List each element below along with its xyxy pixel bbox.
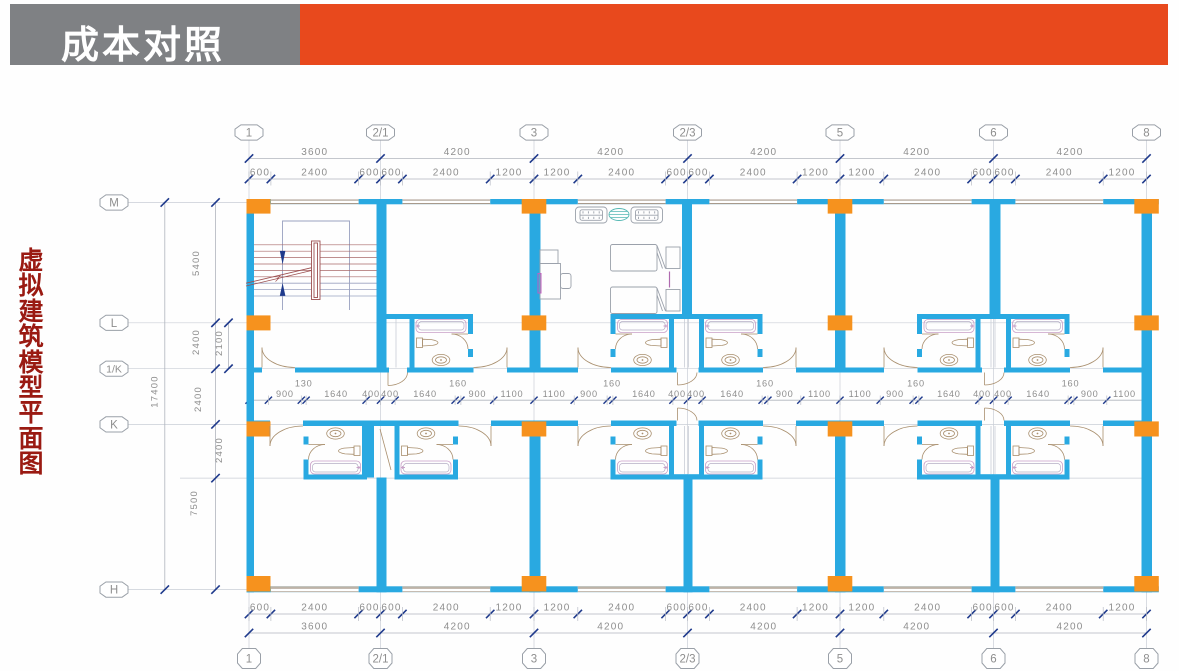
svg-text:2400: 2400: [301, 603, 328, 614]
svg-text:600: 600: [359, 603, 379, 614]
svg-text:900: 900: [469, 389, 487, 399]
svg-text:600: 600: [688, 168, 708, 179]
svg-text:1640: 1640: [720, 389, 744, 399]
svg-text:1200: 1200: [543, 603, 570, 614]
svg-text:2/1: 2/1: [373, 128, 389, 140]
svg-text:2400: 2400: [608, 603, 635, 614]
svg-text:600: 600: [688, 603, 708, 614]
svg-text:2/1: 2/1: [373, 654, 389, 666]
svg-text:4200: 4200: [903, 622, 930, 633]
svg-text:600: 600: [359, 168, 379, 179]
svg-text:2100: 2100: [214, 330, 225, 356]
svg-text:2400: 2400: [433, 603, 460, 614]
svg-text:4200: 4200: [903, 147, 930, 158]
svg-text:1640: 1640: [937, 389, 961, 399]
svg-text:3: 3: [531, 654, 537, 666]
svg-text:4200: 4200: [750, 147, 777, 158]
svg-text:2400: 2400: [191, 329, 202, 355]
svg-text:400: 400: [687, 389, 705, 399]
svg-text:17400: 17400: [150, 375, 161, 407]
svg-text:7500: 7500: [189, 490, 200, 516]
svg-text:1: 1: [246, 654, 252, 666]
svg-text:160: 160: [603, 379, 621, 389]
svg-text:4200: 4200: [444, 622, 471, 633]
svg-text:5400: 5400: [191, 250, 202, 276]
svg-text:160: 160: [1062, 379, 1080, 389]
svg-text:2400: 2400: [433, 168, 460, 179]
svg-text:1100: 1100: [543, 389, 566, 399]
svg-text:400: 400: [362, 389, 380, 399]
svg-text:2400: 2400: [740, 603, 767, 614]
svg-text:2/3: 2/3: [680, 128, 696, 140]
svg-text:600: 600: [666, 603, 686, 614]
svg-text:160: 160: [907, 379, 925, 389]
svg-text:6: 6: [990, 654, 996, 666]
svg-text:400: 400: [994, 389, 1012, 399]
svg-text:4200: 4200: [750, 622, 777, 633]
svg-text:4200: 4200: [444, 147, 471, 158]
svg-text:2/3: 2/3: [680, 654, 696, 666]
svg-text:5: 5: [837, 128, 843, 140]
svg-text:2400: 2400: [214, 437, 225, 463]
svg-text:900: 900: [580, 389, 598, 399]
svg-text:4200: 4200: [597, 147, 624, 158]
svg-text:900: 900: [1081, 389, 1099, 399]
svg-text:400: 400: [668, 389, 686, 399]
svg-text:3600: 3600: [301, 147, 328, 158]
svg-text:3600: 3600: [301, 622, 328, 633]
svg-text:1200: 1200: [495, 603, 522, 614]
svg-text:4200: 4200: [597, 622, 624, 633]
svg-text:1200: 1200: [1108, 603, 1135, 614]
svg-text:600: 600: [250, 168, 270, 179]
svg-text:H: H: [110, 585, 118, 597]
svg-text:1640: 1640: [632, 389, 656, 399]
svg-text:160: 160: [449, 379, 467, 389]
svg-text:1640: 1640: [413, 389, 437, 399]
svg-text:1200: 1200: [802, 168, 829, 179]
svg-text:2400: 2400: [608, 168, 635, 179]
svg-text:900: 900: [776, 389, 794, 399]
svg-text:600: 600: [381, 603, 401, 614]
svg-text:3: 3: [531, 128, 537, 140]
svg-text:1100: 1100: [808, 389, 831, 399]
svg-text:400: 400: [381, 389, 399, 399]
svg-text:L: L: [111, 318, 118, 330]
svg-text:1100: 1100: [849, 389, 872, 399]
svg-text:2400: 2400: [914, 168, 941, 179]
svg-text:600: 600: [994, 603, 1014, 614]
svg-text:2400: 2400: [1046, 168, 1073, 179]
svg-text:M: M: [109, 198, 119, 210]
svg-text:600: 600: [666, 168, 686, 179]
svg-text:1200: 1200: [543, 168, 570, 179]
svg-text:160: 160: [756, 379, 774, 389]
svg-text:400: 400: [973, 389, 991, 399]
svg-text:4200: 4200: [1056, 622, 1083, 633]
svg-text:4200: 4200: [1056, 147, 1083, 158]
svg-text:600: 600: [972, 603, 992, 614]
svg-text:5: 5: [837, 654, 843, 666]
svg-text:2400: 2400: [740, 168, 767, 179]
svg-text:2400: 2400: [1046, 603, 1073, 614]
svg-text:2400: 2400: [193, 386, 204, 412]
svg-text:1200: 1200: [848, 168, 875, 179]
svg-text:1640: 1640: [324, 389, 348, 399]
svg-text:1200: 1200: [802, 603, 829, 614]
svg-text:1/K: 1/K: [106, 364, 122, 376]
svg-text:600: 600: [994, 168, 1014, 179]
svg-text:8: 8: [1143, 654, 1149, 666]
svg-text:1200: 1200: [848, 603, 875, 614]
svg-text:1640: 1640: [1026, 389, 1050, 399]
svg-text:6: 6: [990, 128, 996, 140]
svg-text:1100: 1100: [1113, 389, 1136, 399]
svg-text:600: 600: [972, 168, 992, 179]
svg-text:600: 600: [250, 603, 270, 614]
svg-text:8: 8: [1143, 128, 1149, 140]
svg-text:1200: 1200: [495, 168, 522, 179]
svg-text:1: 1: [246, 128, 252, 140]
svg-text:1100: 1100: [501, 389, 524, 399]
svg-text:2400: 2400: [301, 168, 328, 179]
svg-text:900: 900: [886, 389, 904, 399]
svg-text:900: 900: [276, 389, 294, 399]
svg-text:600: 600: [381, 168, 401, 179]
svg-text:K: K: [110, 420, 118, 432]
svg-text:1200: 1200: [1108, 168, 1135, 179]
svg-text:130: 130: [295, 379, 313, 389]
svg-text:2400: 2400: [914, 603, 941, 614]
